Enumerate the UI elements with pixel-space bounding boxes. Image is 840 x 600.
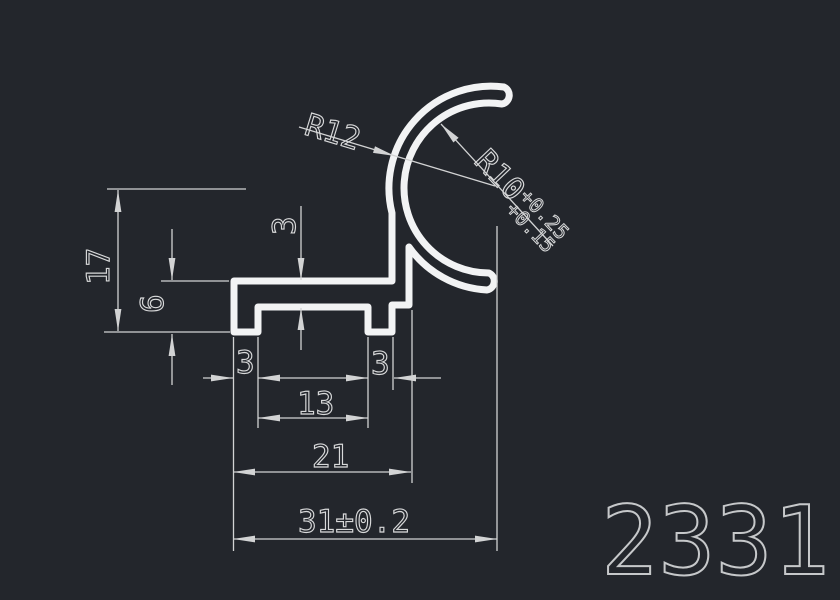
- arrowhead-6-top: [169, 258, 176, 280]
- dim-label-3-right-foot: 3: [371, 346, 390, 382]
- arrowhead-r10: [441, 124, 459, 143]
- arrowhead-31-right: [475, 536, 497, 543]
- profile-drawing-2331: 17 6 3 3 3: [0, 0, 840, 600]
- dimension-base-height: 6: [135, 229, 175, 385]
- dim-label-13: 13: [297, 386, 334, 422]
- arrowhead-17-top: [115, 190, 122, 212]
- dim-label-21: 21: [312, 439, 349, 475]
- arrowhead-3R-left: [346, 375, 368, 382]
- dimension-overall-height: 17: [81, 190, 121, 331]
- dim-label-6: 6: [135, 294, 171, 313]
- arrowhead-13-left: [258, 415, 280, 422]
- arrowhead-r12: [373, 146, 395, 156]
- part-number-label: 2331: [601, 487, 830, 597]
- arrowhead-13-right: [346, 415, 368, 422]
- arrowhead-6-bottom: [169, 334, 176, 356]
- arrowhead-17-bottom: [115, 309, 122, 331]
- dim-label-3-left-foot: 3: [236, 345, 255, 381]
- profile-outline: [234, 86, 509, 332]
- dim-label-31: 31±0.2: [298, 504, 410, 540]
- arrowhead-3L-left: [211, 375, 233, 382]
- dim-label-r12: R12: [301, 107, 365, 158]
- dimension-feet-inner-span: 13: [258, 386, 368, 422]
- arrowhead-3L-right: [258, 375, 280, 382]
- arrowhead-3R-right: [394, 375, 416, 382]
- arrowhead-3v-bottom: [298, 308, 305, 330]
- arrowhead-3v-top: [298, 258, 305, 280]
- arrowhead-21-right: [389, 469, 411, 476]
- dim-label-3-wall: 3: [267, 216, 303, 235]
- dimension-radius-inner: R10 +0.25 +0.15: [441, 124, 574, 257]
- dim-label-r10-group: R10 +0.25 +0.15: [462, 143, 574, 258]
- arrowhead-31-left: [233, 536, 255, 543]
- cad-drawing-canvas: 17 6 3 3 3: [0, 0, 840, 600]
- dim-label-17: 17: [81, 248, 117, 285]
- part-number: 2331: [601, 487, 830, 597]
- profile-cross-section-path: [234, 86, 509, 332]
- dimension-foot-widths: 3 3: [203, 345, 441, 382]
- dimension-body-width: 21: [233, 439, 411, 475]
- arrowhead-21-left: [233, 469, 255, 476]
- dimension-overall-width: 31±0.2: [233, 504, 497, 542]
